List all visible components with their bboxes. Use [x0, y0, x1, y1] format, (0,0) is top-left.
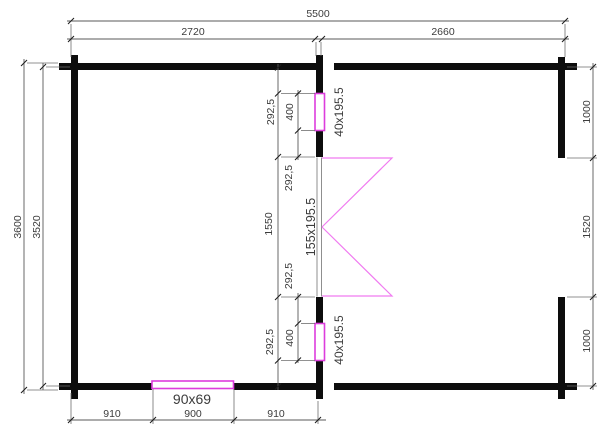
wall-middle-seg1: [316, 55, 323, 94]
double-door: [317, 158, 392, 297]
wall-left: [71, 55, 78, 399]
floor-plan-canvas: 5500 2720 2660 3600 3520 1000 1520 1000 …: [0, 0, 600, 440]
dim-right-room-width: 2660: [431, 26, 455, 38]
door-swing-bottom-leaf: [322, 227, 392, 296]
wall-right-top: [558, 57, 565, 158]
dim-right-wall-top: 1000: [581, 100, 593, 124]
dim-bottom-left: 910: [103, 408, 121, 420]
wall-bottom-left-b: [234, 383, 317, 390]
label-window-middle-bottom: 40x195.5: [332, 315, 346, 365]
wall-right-bottom: [558, 297, 565, 399]
dim-col-seg1: 292,5: [265, 99, 277, 125]
window-middle-bottom: [315, 324, 325, 361]
windows: [152, 94, 325, 389]
window-middle-top: [315, 94, 325, 131]
dim-col-seg2: 400: [284, 103, 296, 121]
wall-bottom-right: [334, 383, 577, 390]
wall-middle-seg4: [316, 361, 323, 400]
wall-top-right: [334, 63, 577, 70]
floor-plan: 5500 2720 2660 3600 3520 1000 1520 1000 …: [0, 0, 600, 440]
dim-col-seg7: 292,5: [264, 329, 276, 355]
dim-bottom-right: 910: [267, 408, 285, 420]
dim-col-seg3: 292,5: [283, 165, 295, 191]
dim-col-seg6: 400: [284, 329, 296, 347]
wall-middle-seg3: [316, 297, 323, 324]
label-window-south: 90x69: [173, 391, 211, 407]
door-swing-top-leaf: [322, 158, 392, 227]
dim-overall-depth: 3600: [12, 215, 24, 239]
dim-right-opening: 1520: [581, 215, 593, 239]
dim-overall-width: 5500: [306, 8, 330, 20]
label-window-middle-top: 40x195.5: [332, 87, 346, 137]
dim-col-seg4: 1550: [263, 212, 275, 236]
dim-right-wall-bottom: 1000: [581, 329, 593, 353]
dim-col-seg5: 292,5: [283, 263, 295, 289]
label-door: 155x195.5: [304, 198, 318, 256]
wall-middle-seg2: [316, 131, 323, 158]
dim-bottom-window: 900: [184, 408, 202, 420]
window-south: [152, 381, 234, 389]
dim-inner-depth: 3520: [31, 215, 43, 239]
wall-top-left: [59, 63, 316, 70]
dim-left-room-width: 2720: [181, 26, 205, 38]
